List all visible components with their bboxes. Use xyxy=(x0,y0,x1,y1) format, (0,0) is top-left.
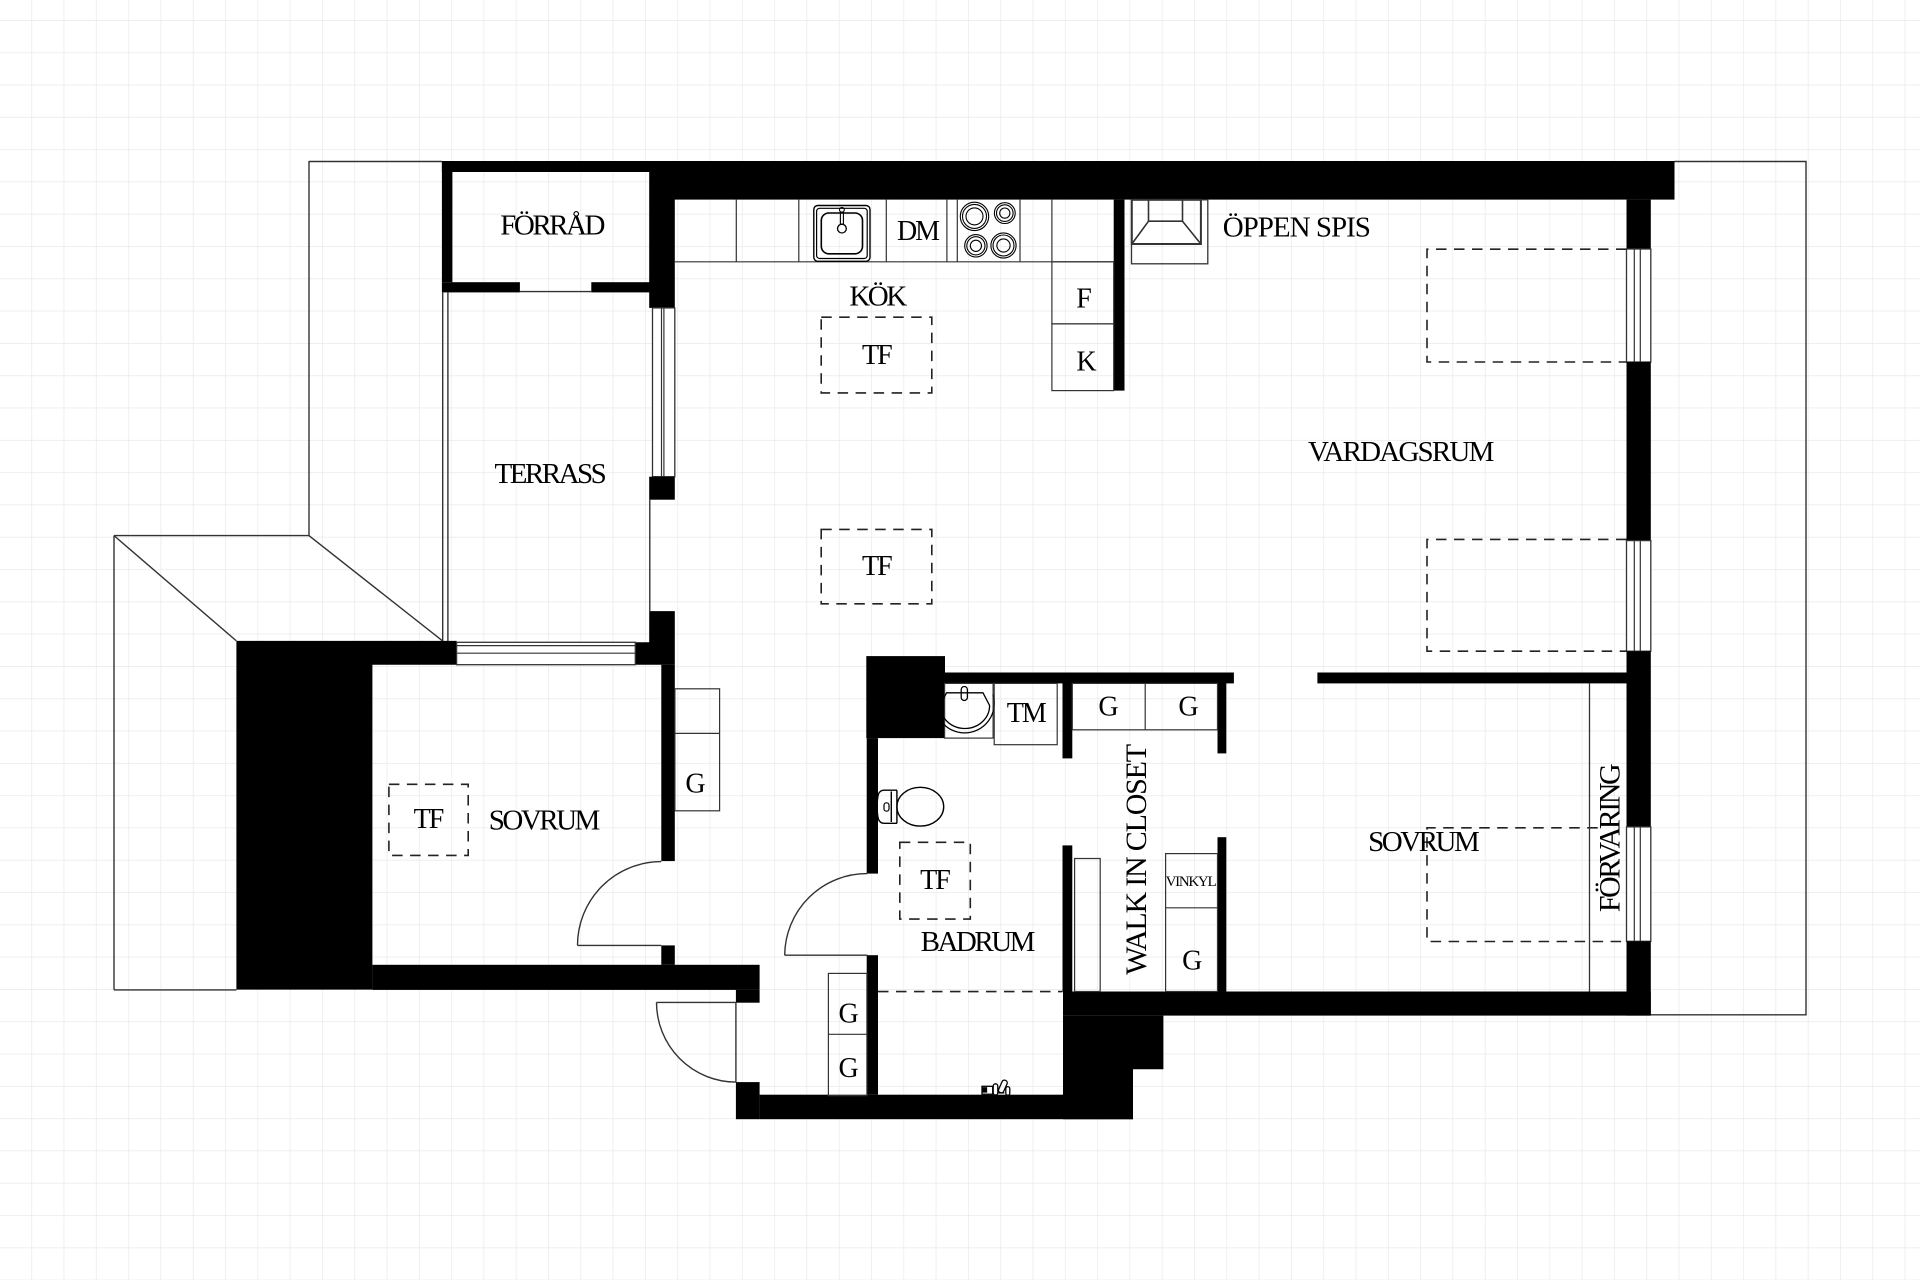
svg-text:G: G xyxy=(1182,946,1202,977)
svg-text:KÖK: KÖK xyxy=(849,281,907,313)
svg-text:G: G xyxy=(1178,692,1198,723)
svg-text:TM: TM xyxy=(1007,698,1047,729)
svg-text:VINKYL: VINKYL xyxy=(1166,874,1217,890)
svg-text:VARDAGSRUM: VARDAGSRUM xyxy=(1308,436,1494,468)
svg-text:TF: TF xyxy=(920,865,950,896)
svg-text:TERRASS: TERRASS xyxy=(494,458,605,490)
svg-text:ÖPPEN SPIS: ÖPPEN SPIS xyxy=(1223,211,1370,243)
svg-text:G: G xyxy=(1098,692,1118,723)
svg-text:BADRUM: BADRUM xyxy=(921,926,1035,958)
svg-text:G: G xyxy=(838,999,858,1030)
svg-text:F: F xyxy=(1076,284,1091,315)
svg-text:FÖRRÅD: FÖRRÅD xyxy=(500,210,604,242)
svg-text:SOVRUM: SOVRUM xyxy=(489,805,600,837)
svg-text:FÖRVARING: FÖRVARING xyxy=(1594,764,1627,912)
svg-text:TF: TF xyxy=(862,551,892,582)
svg-text:G: G xyxy=(685,769,705,800)
svg-text:DM: DM xyxy=(897,216,940,247)
svg-text:SOVRUM: SOVRUM xyxy=(1368,826,1479,858)
svg-text:TF: TF xyxy=(862,340,892,371)
svg-text:G: G xyxy=(838,1053,858,1084)
svg-text:K: K xyxy=(1076,347,1096,378)
svg-text:WALK IN CLOSET: WALK IN CLOSET xyxy=(1120,744,1153,975)
svg-text:TF: TF xyxy=(414,804,444,835)
